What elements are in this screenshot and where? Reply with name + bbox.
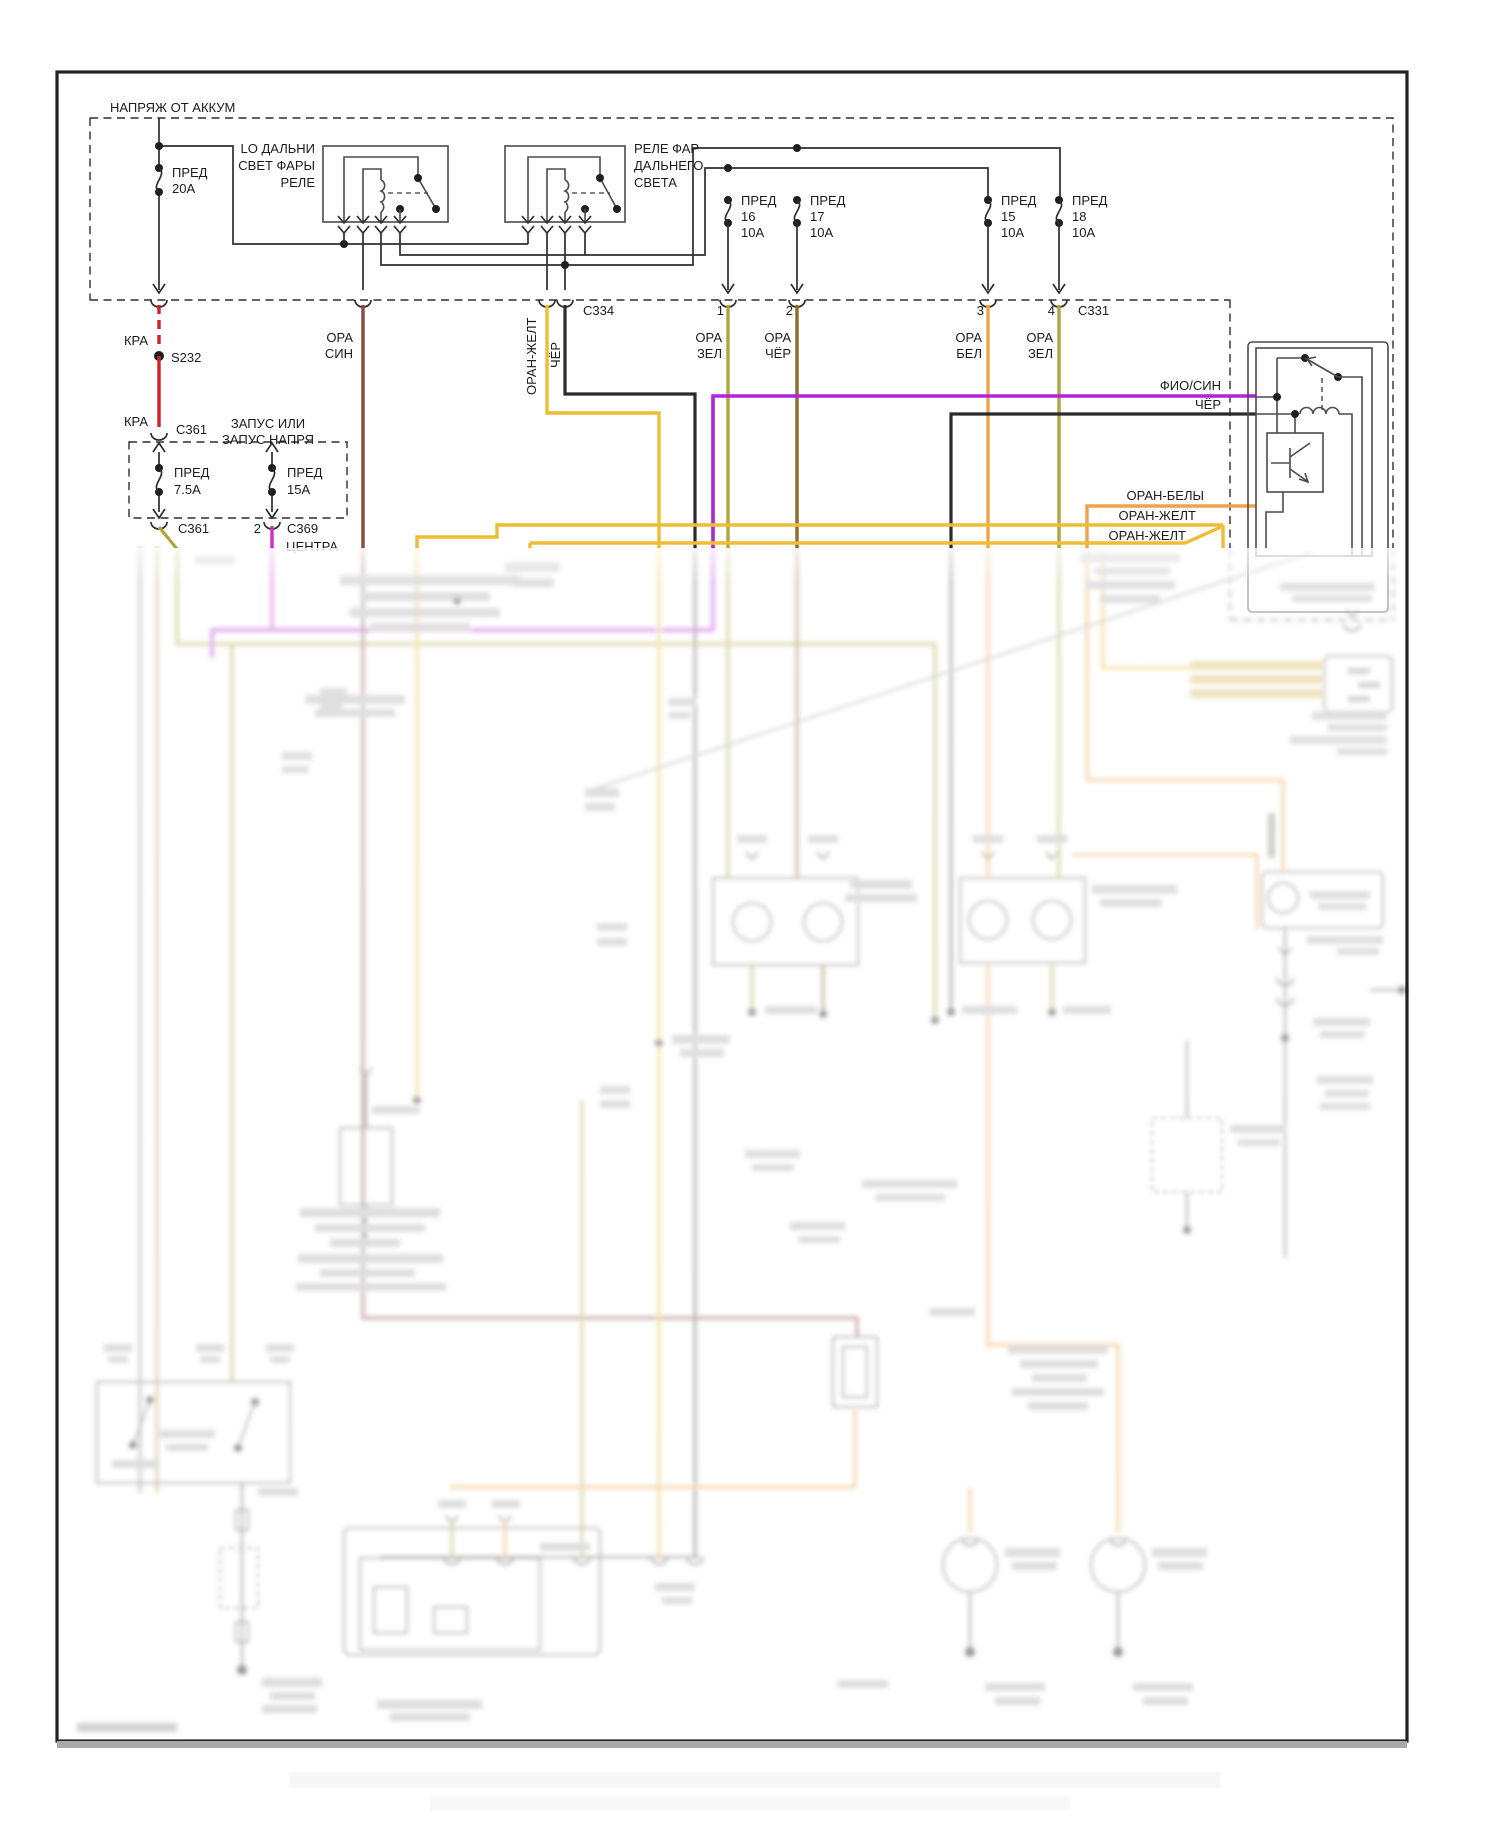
connector-c334-label: C334	[583, 303, 614, 318]
relay-low-label-1: LO ДАЛЬНИ	[240, 141, 315, 156]
pin-2-label: 2	[786, 303, 793, 318]
faded-overlay	[59, 548, 1405, 1739]
relay-low-pin-arrows	[338, 216, 406, 233]
pin-3-label: 3	[977, 303, 984, 318]
fuse-15a-acc: ПРЕД 15А	[266, 443, 323, 518]
fuse-18-label-1: ПРЕД	[1072, 193, 1108, 208]
relay-low-label-2: СВЕТ ФАРЫ	[238, 158, 315, 173]
relay-low-label-3: РЕЛЕ	[280, 175, 315, 190]
ora-bel-label-1: ОРА	[955, 330, 982, 345]
pin-2b-label: 2	[254, 521, 261, 536]
ora-cher-label-2: ЧЁР	[765, 346, 791, 361]
start-box-label-1: ЗАПУС ИЛИ	[231, 416, 305, 431]
c361-upper-label: C361	[176, 422, 207, 437]
fuse-75a-label-2: 7.5А	[174, 482, 201, 497]
fio-sin-label: ФИО/СИН	[1160, 378, 1221, 393]
fuse-17-label-3: 10А	[810, 225, 833, 240]
fuse-15a-label-1: ПРЕД	[287, 465, 323, 480]
wire-oran-zhelt-2: ОРАН-ЖЕЛТ	[530, 527, 1221, 549]
s232-label: S232	[171, 350, 201, 365]
start-box-label-2: ЗАПУС НАПРЯ	[222, 432, 314, 447]
wire-ora-sin: ОРА СИН	[325, 305, 363, 549]
ora-zel2-label-1: ОРА	[1026, 330, 1053, 345]
start-run-fuse-box: ЗАПУС ИЛИ ЗАПУС НАПРЯ ПРЕД 7.5А ПРЕД 15А…	[129, 416, 347, 554]
relay-high-label-1: РЕЛЕ ФАР	[634, 141, 699, 156]
pin-4-label: 4	[1048, 303, 1055, 318]
wire-kra-red: КРА S232 КРА C361	[124, 305, 207, 440]
fuse-18-label-3: 10А	[1072, 225, 1095, 240]
fuse-16-label-3: 10А	[741, 225, 764, 240]
relay-high-beam: РЕЛЕ ФАР ДАЛЬНЕГО СВЕТА	[505, 141, 703, 290]
fuse-16-label-2: 16	[741, 209, 755, 224]
fuse-16: ПРЕД 16 10А	[722, 193, 777, 293]
fuse-7-5a: ПРЕД 7.5А	[153, 443, 210, 518]
cher-h-label: ЧЁР	[1195, 397, 1221, 412]
oran-bely-label: ОРАН-БЕЛЫ	[1126, 488, 1204, 503]
wire-pin4-olive: ОРА ЗЕЛ	[1026, 305, 1059, 549]
wire-pin3-orange: ОРА БЕЛ	[955, 305, 988, 549]
wire-oran-zhelt-main: ОРАН-ЖЕЛТ	[524, 305, 659, 549]
c369-label: C369	[287, 521, 318, 536]
wire-cher-main: ЧЁР	[548, 305, 695, 549]
fuse-18: ПРЕД 18 10А	[1053, 193, 1108, 293]
connector-c331-label: C331	[1078, 303, 1109, 318]
ora-zel1-label-2: ЗЕЛ	[697, 346, 722, 361]
fuse-15-label-3: 10А	[1001, 225, 1024, 240]
wiring-diagram-page: НАПРЯЖ ОТ АККУМ ПРЕД 20А LO ДАЛЬНИ СВЕТ …	[0, 0, 1500, 1828]
fuse-17-label-2: 17	[810, 209, 824, 224]
fuse-15a-label-2: 15А	[287, 482, 310, 497]
below-page-smudges	[290, 1772, 1220, 1810]
fuse-17: ПРЕД 17 10А	[791, 193, 846, 293]
transistor-symbol	[1267, 433, 1323, 492]
wire-pin2-brown: ОРА ЧЁР	[764, 305, 797, 549]
fuse-20a: ПРЕД 20А	[153, 118, 528, 293]
ora-cher-label-1: ОРА	[764, 330, 791, 345]
ora-zel2-label-2: ЗЕЛ	[1028, 346, 1053, 361]
ora-sin-label-2: СИН	[325, 346, 353, 361]
kra-lower-label: КРА	[124, 414, 148, 429]
oran-zhelt2-label: ОРАН-ЖЕЛТ	[1109, 528, 1187, 543]
relay-high-label-2: ДАЛЬНЕГО	[634, 158, 703, 173]
battery-voltage-label: НАПРЯЖ ОТ АККУМ	[110, 100, 235, 115]
fuse-17-label-1: ПРЕД	[810, 193, 846, 208]
pin-1-label: 1	[717, 303, 724, 318]
fuse-20a-label-1: ПРЕД	[172, 165, 208, 180]
fuse-18-label-2: 18	[1072, 209, 1086, 224]
relay-high-label-3: СВЕТА	[634, 175, 677, 190]
oran-zhelt-vert-label: ОРАН-ЖЕЛТ	[524, 317, 539, 395]
fuse-15: ПРЕД 15 10А	[982, 193, 1037, 293]
wiring-diagram-svg: НАПРЯЖ ОТ АККУМ ПРЕД 20А LO ДАЛЬНИ СВЕТ …	[0, 0, 1500, 1828]
ora-bel-label-2: БЕЛ	[956, 346, 982, 361]
fuse-75a-label-1: ПРЕД	[174, 465, 210, 480]
fuse-20a-label-2: 20А	[172, 181, 195, 196]
oran-zhelt1-label: ОРАН-ЖЕЛТ	[1119, 508, 1197, 523]
kra-upper-label: КРА	[124, 333, 148, 348]
relay-high-pin-arrows	[522, 216, 591, 233]
fuse-15-label-1: ПРЕД	[1001, 193, 1037, 208]
fuse-16-label-1: ПРЕД	[741, 193, 777, 208]
cher-vert-label: ЧЁР	[548, 342, 563, 368]
ora-sin-label-1: ОРА	[326, 330, 353, 345]
fuse-15-label-2: 15	[1001, 209, 1015, 224]
ora-zel1-label-1: ОРА	[695, 330, 722, 345]
c361-lower-label: C361	[178, 521, 209, 536]
